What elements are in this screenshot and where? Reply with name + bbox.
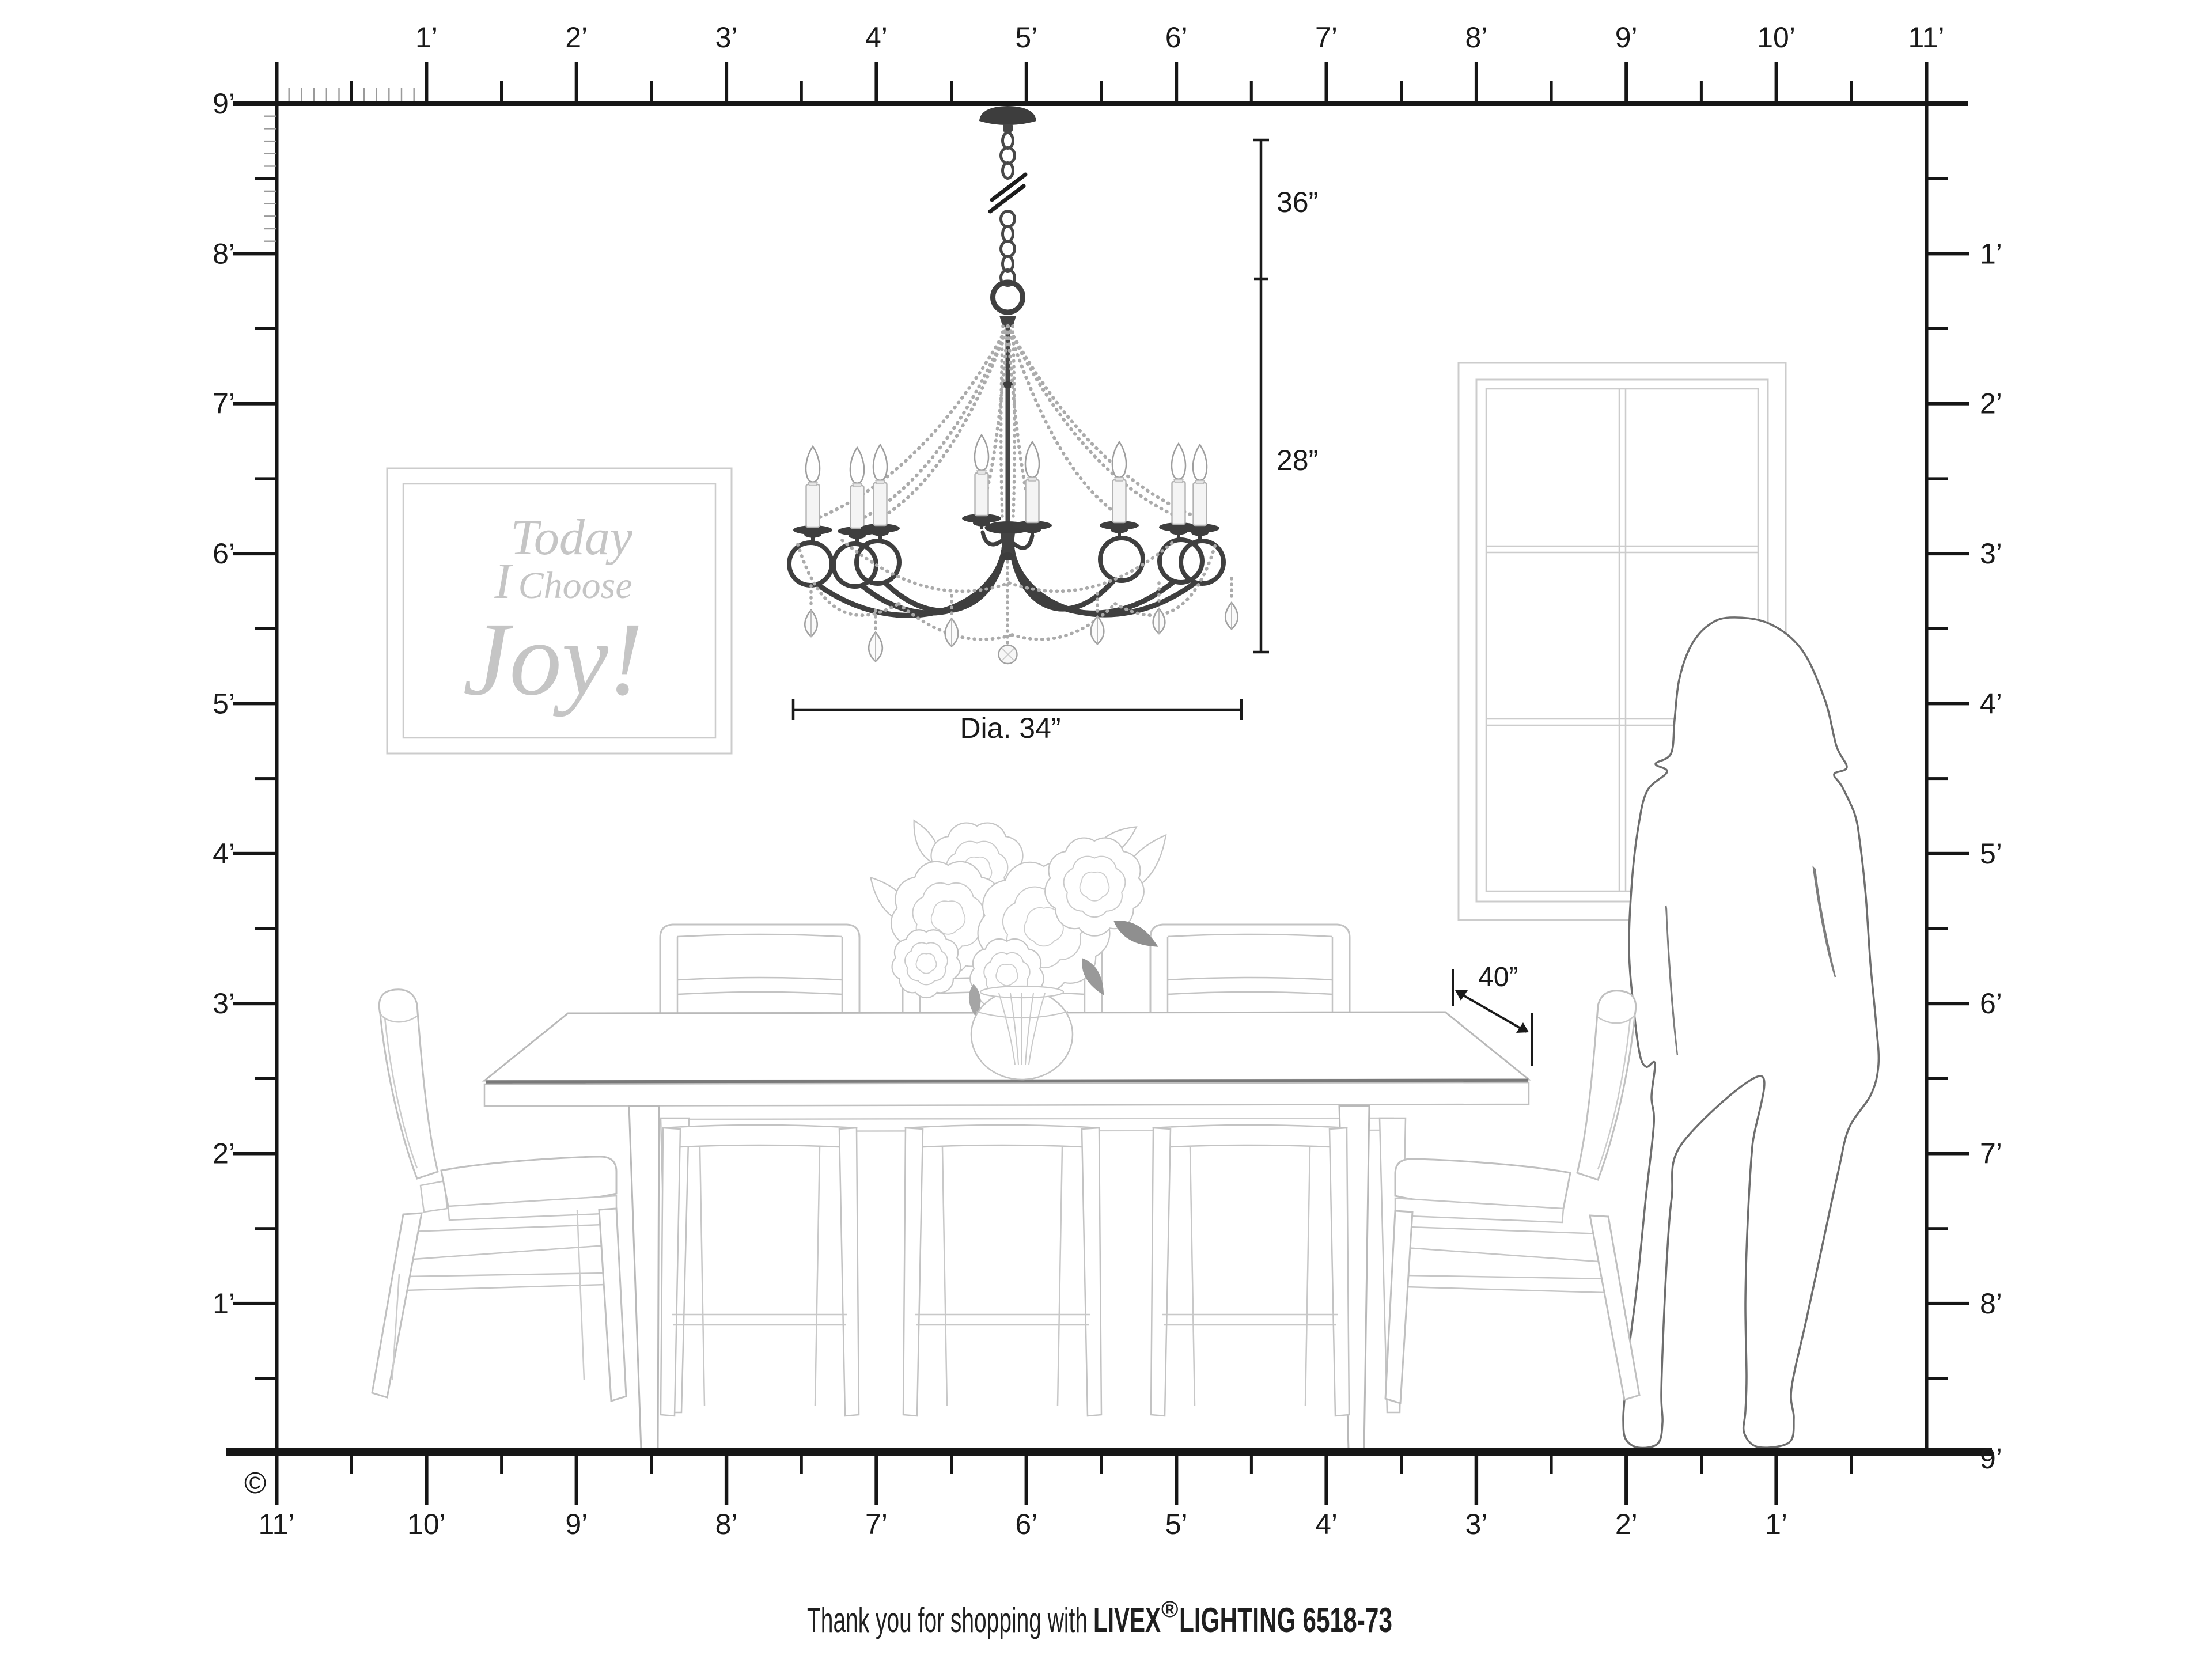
svg-text:4’: 4’ bbox=[865, 21, 888, 54]
svg-text:2’: 2’ bbox=[213, 1138, 235, 1170]
svg-text:Dia. 34”: Dia. 34” bbox=[960, 712, 1060, 744]
svg-text:3’: 3’ bbox=[715, 21, 738, 54]
svg-text:®: ® bbox=[1161, 1597, 1178, 1622]
svg-text:4’: 4’ bbox=[213, 838, 235, 870]
svg-text:1’: 1’ bbox=[1765, 1508, 1787, 1540]
svg-text:11’: 11’ bbox=[1908, 21, 1944, 54]
svg-text:9’: 9’ bbox=[1980, 1442, 2002, 1475]
svg-text:9’: 9’ bbox=[213, 88, 235, 120]
svg-text:28”: 28” bbox=[1277, 444, 1318, 476]
svg-text:8’: 8’ bbox=[1980, 1287, 2002, 1320]
svg-text:2’: 2’ bbox=[1980, 388, 2002, 420]
svg-text:5’: 5’ bbox=[1980, 838, 2002, 870]
svg-text:8’: 8’ bbox=[1465, 21, 1487, 54]
svg-text:6’: 6’ bbox=[1165, 21, 1188, 54]
svg-text:1’: 1’ bbox=[213, 1287, 235, 1320]
svg-text:6’: 6’ bbox=[213, 537, 235, 570]
svg-text:3’: 3’ bbox=[213, 987, 235, 1020]
svg-text:7’: 7’ bbox=[1315, 21, 1338, 54]
svg-text:10’: 10’ bbox=[1757, 21, 1796, 54]
svg-text:Joy!: Joy! bbox=[463, 601, 643, 717]
svg-text:8’: 8’ bbox=[213, 237, 235, 270]
svg-text:9’: 9’ bbox=[565, 1508, 588, 1540]
svg-text:©: © bbox=[244, 1467, 266, 1500]
svg-text:11’: 11’ bbox=[258, 1508, 294, 1540]
svg-text:3’: 3’ bbox=[1465, 1508, 1487, 1540]
svg-text:1’: 1’ bbox=[1980, 237, 2002, 270]
svg-text:3’: 3’ bbox=[1980, 537, 2002, 570]
svg-text:7’: 7’ bbox=[213, 388, 235, 420]
svg-text:Thank you for shopping with: Thank you for shopping with bbox=[807, 1601, 1088, 1639]
svg-text:4’: 4’ bbox=[1980, 687, 2002, 719]
svg-text:9’: 9’ bbox=[1615, 21, 1638, 54]
svg-text:2’: 2’ bbox=[1615, 1508, 1638, 1540]
svg-text:2’: 2’ bbox=[565, 21, 588, 54]
svg-text:8’: 8’ bbox=[715, 1508, 738, 1540]
svg-text:LIVEX: LIVEX bbox=[1093, 1601, 1161, 1639]
svg-text:5’: 5’ bbox=[1165, 1508, 1188, 1540]
svg-text:LIGHTING 6518-73: LIGHTING 6518-73 bbox=[1179, 1601, 1392, 1639]
svg-text:5’: 5’ bbox=[213, 687, 235, 719]
svg-text:Today: Today bbox=[510, 510, 633, 566]
svg-text:7’: 7’ bbox=[1980, 1138, 2002, 1170]
svg-text:6’: 6’ bbox=[1980, 987, 2002, 1020]
svg-text:36”: 36” bbox=[1277, 186, 1318, 218]
svg-text:5’: 5’ bbox=[1015, 21, 1037, 54]
svg-text:7’: 7’ bbox=[865, 1508, 888, 1540]
svg-text:1’: 1’ bbox=[415, 21, 438, 54]
svg-text:4’: 4’ bbox=[1315, 1508, 1338, 1540]
svg-text:40”: 40” bbox=[1478, 962, 1518, 993]
svg-text:10’: 10’ bbox=[407, 1508, 446, 1540]
svg-text:6’: 6’ bbox=[1015, 1508, 1037, 1540]
